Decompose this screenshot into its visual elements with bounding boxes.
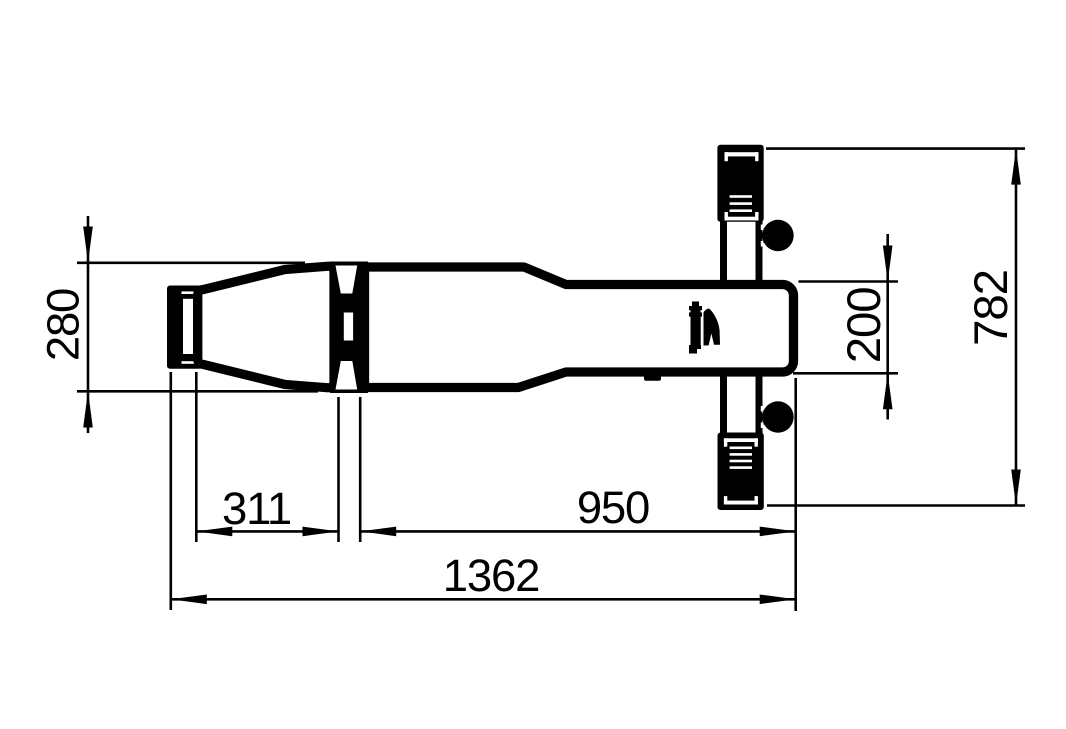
svg-text:311: 311 [222, 483, 291, 534]
svg-text:950: 950 [577, 482, 649, 533]
svg-text:200: 200 [838, 288, 891, 364]
svg-text:782: 782 [965, 270, 1018, 346]
svg-text:1362: 1362 [443, 550, 539, 601]
svg-text:280: 280 [37, 289, 88, 361]
